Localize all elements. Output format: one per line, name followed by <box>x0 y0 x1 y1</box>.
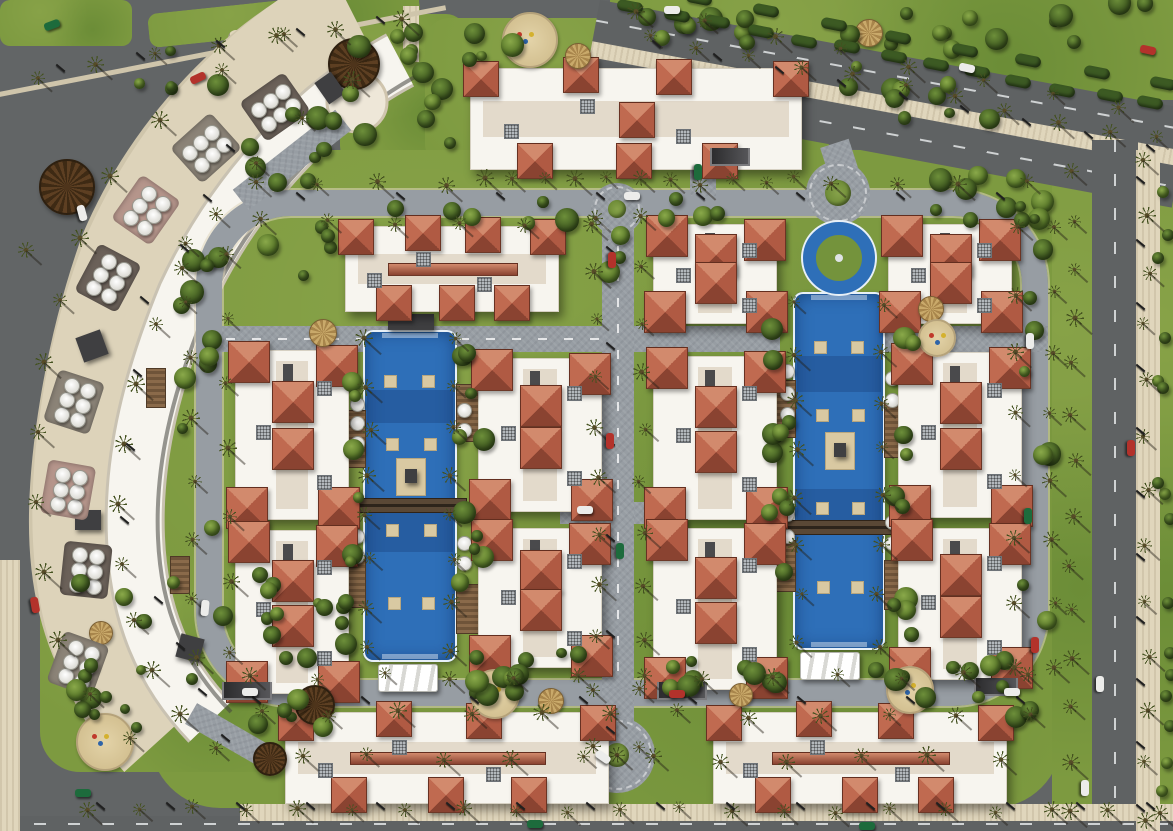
palm-tree <box>295 111 309 125</box>
palm-tree <box>632 475 645 488</box>
tree <box>134 78 145 89</box>
palm-tree <box>600 171 612 183</box>
palm-tree <box>209 741 223 755</box>
roof-vent <box>317 560 332 575</box>
palm-tree <box>633 170 648 185</box>
palm-tree <box>1150 130 1163 143</box>
palm-tree <box>726 173 738 185</box>
building-roof <box>520 385 562 427</box>
tree <box>501 33 524 56</box>
cafe-umbrella <box>64 378 80 394</box>
car <box>1024 508 1032 524</box>
island-pavilion <box>834 443 846 457</box>
palm-tree <box>1065 603 1078 616</box>
tree <box>458 344 476 362</box>
palm-tree <box>947 88 962 103</box>
palm-tree <box>87 56 104 73</box>
straw-gazebo <box>565 43 591 69</box>
hedge <box>1083 65 1111 81</box>
tree <box>444 137 456 149</box>
car <box>1031 637 1039 653</box>
palm-tree <box>188 649 205 666</box>
pool-island <box>817 581 830 594</box>
tree <box>166 81 176 91</box>
palm-tree <box>1138 595 1151 608</box>
palm-tree <box>590 469 607 486</box>
palm-tree <box>109 495 126 512</box>
roof-vent <box>742 477 757 492</box>
palm-tree <box>1007 343 1024 360</box>
palm-tree <box>1068 215 1081 228</box>
building-roof <box>439 285 475 321</box>
palm-tree <box>443 508 456 521</box>
pool-shade <box>367 513 453 553</box>
roof-vent <box>318 763 333 778</box>
palm-tree <box>787 170 800 183</box>
pool-island <box>424 438 437 451</box>
tree <box>1162 229 1173 241</box>
tree <box>71 574 90 593</box>
palm-tree <box>255 704 269 718</box>
palm-tree <box>311 178 324 191</box>
building-roof <box>656 59 692 95</box>
palm-tree <box>876 441 888 453</box>
car <box>75 789 91 797</box>
palm-tree <box>796 588 808 600</box>
building-roof <box>891 519 933 561</box>
palm-tree <box>185 592 198 605</box>
hedge <box>1136 94 1164 110</box>
light-pole <box>375 16 385 25</box>
tree <box>451 573 469 591</box>
palm-tree <box>1062 407 1078 423</box>
hedge <box>922 57 950 73</box>
pool-island <box>386 524 399 537</box>
pool-island <box>422 597 435 610</box>
car <box>1096 676 1104 692</box>
car <box>30 596 41 613</box>
tree <box>1159 332 1171 344</box>
cafe-umbrella <box>101 254 117 270</box>
palm-tree <box>289 800 305 816</box>
roof-vent <box>367 273 382 288</box>
pool-island <box>816 502 829 515</box>
roof-vent <box>317 381 332 396</box>
tree <box>1108 0 1131 15</box>
palm-tree <box>566 170 584 188</box>
palm-tree <box>1010 219 1026 235</box>
palm-tree <box>993 751 1009 767</box>
palm-tree <box>398 803 412 817</box>
building <box>470 68 802 170</box>
palm-tree <box>358 467 376 485</box>
palm-tree <box>223 646 236 659</box>
car <box>606 433 614 449</box>
tree <box>277 703 292 718</box>
tree <box>1029 214 1039 224</box>
roof-vent <box>977 298 992 313</box>
palm-tree <box>1047 220 1061 234</box>
palm-tree <box>346 804 358 816</box>
tree <box>537 196 548 207</box>
bridge-line <box>356 504 466 507</box>
cafe-umbrella <box>67 499 83 515</box>
palm-tree <box>223 509 238 524</box>
roof-vent <box>256 425 271 440</box>
tree <box>1019 366 1030 377</box>
palm-tree <box>663 172 678 187</box>
palm-tree <box>115 557 129 571</box>
pool-steps <box>382 654 438 659</box>
palm-tree <box>248 174 264 190</box>
palm-tree <box>1137 317 1149 329</box>
light-pole <box>1145 144 1155 153</box>
palm-tree <box>637 525 653 541</box>
palm-tree <box>854 748 869 763</box>
palm-tree <box>1061 802 1079 820</box>
pool-island <box>388 597 401 610</box>
building-roof <box>695 557 737 599</box>
palm-tree <box>627 3 645 21</box>
tree <box>904 627 919 642</box>
tree <box>400 47 418 65</box>
palm-tree <box>789 635 804 650</box>
pool-steps <box>811 295 866 300</box>
palm-tree <box>786 347 803 364</box>
roof-vent <box>921 595 936 610</box>
tree <box>390 29 405 44</box>
tree <box>199 347 219 367</box>
roof-vent <box>987 556 1002 571</box>
light-pole <box>1135 238 1145 247</box>
building-roof <box>695 386 737 428</box>
palm-tree <box>1006 530 1022 546</box>
tree <box>100 691 112 703</box>
site-plan <box>0 0 1173 831</box>
cafe-umbrella <box>55 467 71 483</box>
tree <box>417 110 435 128</box>
roof-vent <box>676 268 691 283</box>
tree <box>471 530 483 542</box>
palm-tree <box>1045 345 1061 361</box>
roof-vent <box>743 763 758 778</box>
pool-bridge <box>785 520 895 535</box>
palm-tree <box>83 687 97 701</box>
tree <box>462 52 477 67</box>
tree <box>1164 513 1173 525</box>
palm-tree <box>874 396 889 411</box>
palm-tree <box>369 173 387 191</box>
palm-tree <box>613 802 628 817</box>
palm-tree <box>1049 597 1062 610</box>
palm-tree <box>1139 372 1154 387</box>
palm-tree <box>1111 100 1126 115</box>
palm-tree <box>215 63 229 77</box>
tree <box>186 673 198 685</box>
tree <box>666 660 680 674</box>
palm-tree <box>436 752 453 769</box>
palm-tree <box>1062 754 1080 772</box>
palm-tree <box>1063 699 1078 714</box>
palm-tree <box>133 803 146 816</box>
palm-tree <box>174 260 190 276</box>
tree <box>900 7 913 20</box>
palm-tree <box>1043 531 1060 548</box>
palm-tree <box>31 71 45 85</box>
roof-vent <box>987 474 1002 489</box>
palm-tree <box>357 379 374 396</box>
palm-tree <box>355 329 373 347</box>
palm-tree <box>127 375 145 393</box>
palm-tree <box>877 298 891 312</box>
palm-tree <box>1020 174 1034 188</box>
palm-tree <box>295 748 311 764</box>
palm-tree <box>777 804 791 818</box>
palm-tree <box>343 71 362 90</box>
palm-tree <box>539 172 552 185</box>
palm-tree <box>949 175 967 193</box>
roof-ridge <box>388 263 517 276</box>
building-roof <box>520 550 562 592</box>
tree <box>465 670 489 694</box>
palm-tree <box>589 370 602 383</box>
roof-vent <box>977 243 992 258</box>
play-equipment <box>905 690 910 695</box>
building-roof <box>228 521 270 563</box>
tree <box>257 234 278 255</box>
palm-tree <box>442 467 458 483</box>
tree <box>200 259 214 273</box>
tree <box>347 35 371 59</box>
tree <box>915 687 935 707</box>
palm-tree <box>533 704 550 721</box>
palm-tree <box>49 631 66 648</box>
palm-tree <box>1135 152 1151 168</box>
pool-island <box>852 502 865 515</box>
light-pole <box>119 516 129 525</box>
palm-tree <box>844 66 861 83</box>
palm-tree <box>1063 650 1081 668</box>
palm-tree <box>589 629 603 643</box>
tree <box>316 142 332 158</box>
car <box>664 6 680 14</box>
palm-tree <box>389 702 407 720</box>
tree <box>930 204 942 216</box>
tree <box>1137 0 1153 12</box>
palm-tree <box>464 706 480 722</box>
tree <box>985 28 1007 50</box>
car <box>242 688 258 696</box>
tree <box>204 520 220 536</box>
cafe-umbrella <box>63 654 79 670</box>
tree <box>1015 201 1026 212</box>
roundabout-palm <box>609 747 625 763</box>
tree <box>324 241 336 253</box>
car <box>1081 780 1089 796</box>
tree <box>316 599 333 616</box>
palm-tree <box>645 748 662 765</box>
palm-tree <box>602 705 619 722</box>
cafe-umbrella <box>75 398 91 414</box>
roof-vent <box>580 99 595 114</box>
palm-tree <box>322 710 336 724</box>
building-roof <box>695 602 737 644</box>
hedge <box>752 3 780 19</box>
palm-tree <box>948 707 964 723</box>
light-pole <box>713 53 723 62</box>
palm-tree <box>834 42 847 55</box>
palm-tree <box>476 169 494 187</box>
tree <box>1159 488 1171 500</box>
tree <box>763 350 783 370</box>
palm-tree <box>517 218 532 233</box>
palm-tree <box>585 263 603 281</box>
palm-tree <box>760 176 773 189</box>
light-pole <box>153 596 163 605</box>
palm-tree <box>633 363 651 381</box>
tree <box>353 123 376 146</box>
pool-island <box>851 581 864 594</box>
roof-vent <box>504 124 519 139</box>
palm-tree <box>1009 469 1021 481</box>
pool-island <box>424 524 437 537</box>
pool-island <box>852 409 865 422</box>
palm-tree <box>242 667 258 683</box>
palm-tree <box>794 60 809 75</box>
palm-tree <box>321 213 335 227</box>
tree <box>555 208 579 232</box>
palm-tree <box>764 668 781 685</box>
pool-island <box>386 438 399 451</box>
palm-tree <box>788 296 801 309</box>
building-roof <box>881 215 923 257</box>
straw-gazebo <box>729 683 753 707</box>
palm-tree <box>101 167 119 185</box>
tree <box>387 200 404 217</box>
cafe-umbrella <box>141 186 157 202</box>
palm-tree <box>632 681 647 696</box>
building-roof <box>494 285 530 321</box>
palm-tree <box>249 156 263 170</box>
palm-tree <box>357 507 372 522</box>
palm-tree <box>1066 309 1083 326</box>
palm-tree <box>637 668 652 683</box>
tree <box>1162 597 1173 609</box>
palm-tree <box>447 380 460 393</box>
car <box>1004 688 1020 696</box>
palm-tree <box>586 419 603 436</box>
palm-tree <box>883 708 896 721</box>
palm-tree <box>635 578 650 593</box>
wood-deck <box>146 368 166 408</box>
palm-tree <box>895 672 908 685</box>
palm-tree <box>787 392 803 408</box>
palm-tree <box>506 671 521 686</box>
light-pole <box>1135 678 1145 687</box>
light-pole <box>95 802 105 811</box>
palm-tree <box>185 799 199 813</box>
tree <box>1033 445 1053 465</box>
tree <box>1049 4 1073 28</box>
roof-vent <box>486 767 501 782</box>
palm-tree <box>591 313 603 325</box>
palm-tree <box>126 612 141 627</box>
palm-tree <box>1143 266 1158 281</box>
palm-tree <box>149 317 163 331</box>
palm-tree <box>873 344 889 360</box>
palm-tree <box>561 806 574 819</box>
roof-vent <box>567 554 582 569</box>
building <box>478 358 602 512</box>
palm-tree <box>634 260 648 274</box>
palm-tree <box>670 703 684 717</box>
palm-tree <box>883 802 896 815</box>
play-equipment <box>104 734 109 739</box>
palm-tree <box>591 576 608 593</box>
palm-tree <box>1006 595 1022 611</box>
light-pole <box>165 802 175 811</box>
light-pole <box>1135 301 1145 310</box>
palm-tree <box>438 177 455 194</box>
play-equipment <box>935 340 940 345</box>
roof-vent <box>477 277 492 292</box>
pool-island <box>816 409 829 422</box>
tree <box>343 439 364 460</box>
palm-tree <box>673 801 685 813</box>
pool-steps <box>811 642 866 647</box>
building <box>898 352 1022 518</box>
car <box>694 164 702 180</box>
palm-tree <box>1047 87 1059 99</box>
tree <box>1157 186 1169 198</box>
palm-tree <box>1068 263 1081 276</box>
pool-center-island <box>825 432 855 470</box>
palm-tree <box>223 573 240 590</box>
palm-tree <box>28 494 43 509</box>
building-roof <box>695 262 737 304</box>
roof-vent <box>317 475 332 490</box>
tree <box>465 388 477 400</box>
palm-tree <box>823 176 838 191</box>
tree <box>898 111 912 125</box>
roof-vent <box>921 425 936 440</box>
palm-tree <box>767 28 784 45</box>
pool-steps <box>382 333 438 338</box>
tree <box>1164 647 1173 659</box>
tree <box>424 94 440 110</box>
tree <box>932 25 949 42</box>
tree <box>260 582 277 599</box>
car <box>669 690 685 698</box>
palm-tree <box>219 246 235 262</box>
palm-tree <box>171 705 190 724</box>
palm-tree <box>1142 649 1157 664</box>
tree <box>165 46 175 56</box>
building-roof <box>405 215 441 251</box>
car <box>958 62 975 73</box>
garage-ramp <box>710 148 750 166</box>
palm-tree <box>311 673 324 686</box>
building-roof <box>228 341 270 383</box>
building <box>235 350 349 520</box>
palm-tree <box>446 420 460 434</box>
tree <box>1067 35 1081 49</box>
roof-vent <box>742 243 757 258</box>
building-roof <box>644 291 686 333</box>
tree <box>120 704 130 714</box>
tree <box>1037 611 1057 631</box>
palm-tree <box>955 664 972 681</box>
